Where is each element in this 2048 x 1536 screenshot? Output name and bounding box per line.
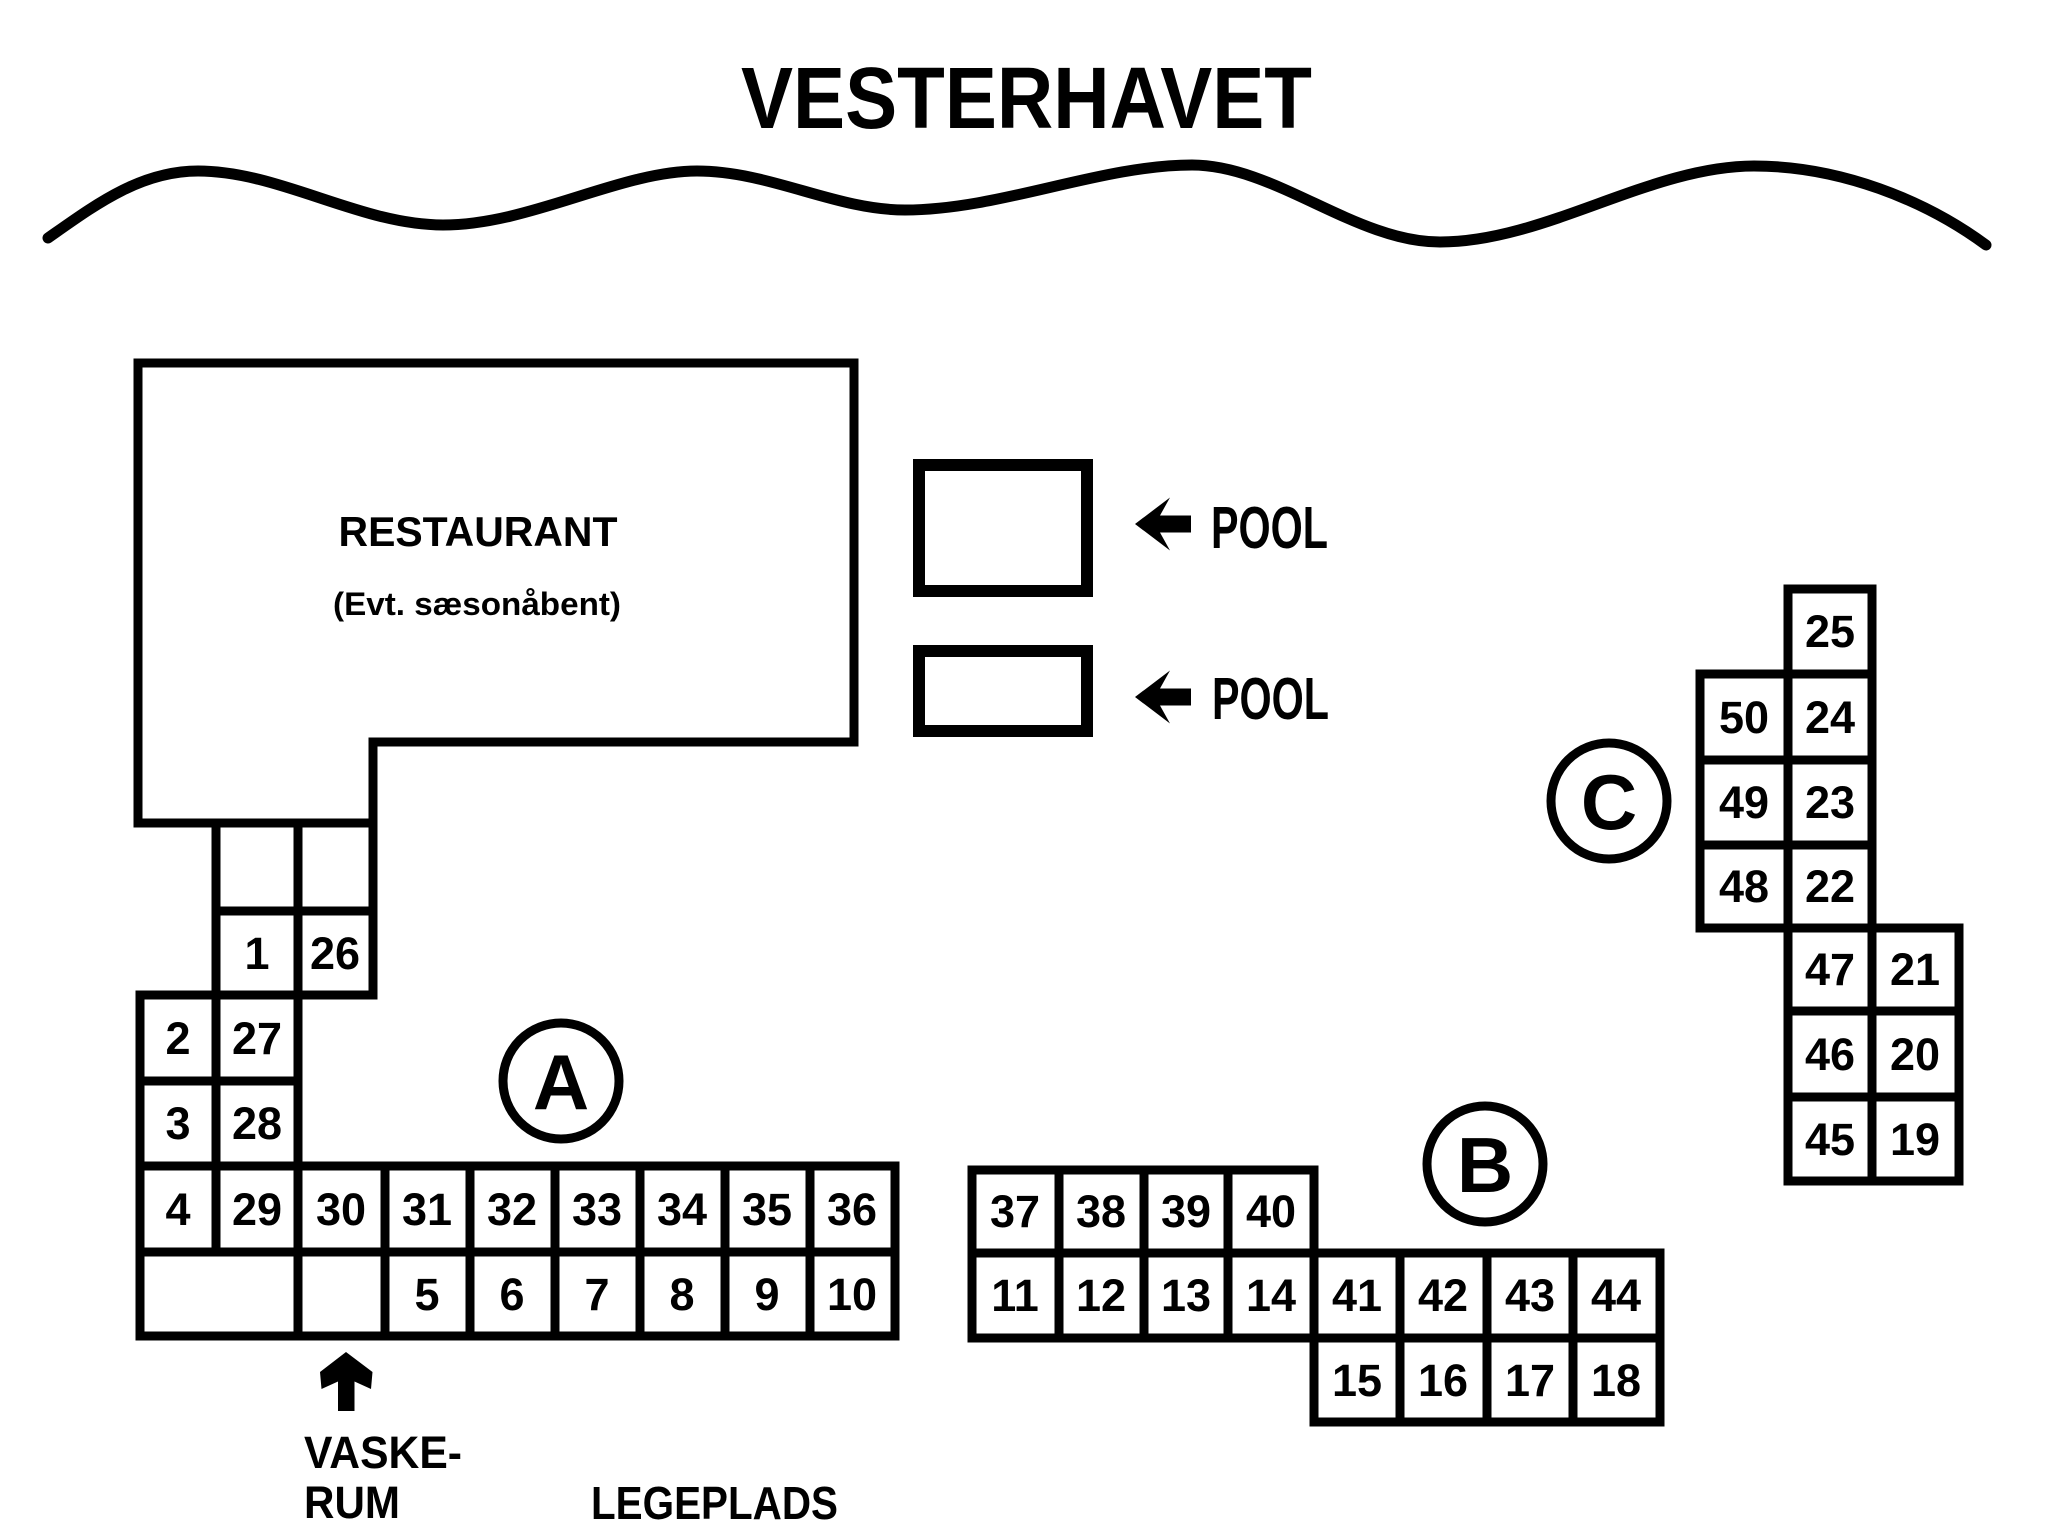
svg-text:31: 31	[402, 1184, 452, 1235]
svg-text:6: 6	[499, 1269, 524, 1320]
svg-text:27: 27	[232, 1013, 282, 1064]
svg-text:POOL: POOL	[1211, 495, 1328, 561]
svg-text:POOL: POOL	[1212, 666, 1329, 732]
svg-text:35: 35	[742, 1184, 792, 1235]
svg-text:28: 28	[232, 1098, 282, 1149]
svg-text:20: 20	[1890, 1029, 1940, 1080]
svg-text:2: 2	[165, 1013, 190, 1064]
svg-text:11: 11	[991, 1270, 1039, 1321]
svg-text:34: 34	[657, 1184, 707, 1235]
svg-text:29: 29	[232, 1184, 282, 1235]
svg-text:19: 19	[1890, 1114, 1940, 1165]
svg-text:3: 3	[165, 1098, 190, 1149]
svg-text:21: 21	[1890, 944, 1940, 995]
svg-text:18: 18	[1591, 1355, 1641, 1406]
svg-text:12: 12	[1076, 1270, 1126, 1321]
svg-text:45: 45	[1805, 1114, 1855, 1165]
svg-text:5: 5	[414, 1269, 439, 1320]
svg-text:22: 22	[1805, 861, 1855, 912]
svg-text:37: 37	[990, 1186, 1040, 1237]
svg-text:33: 33	[572, 1184, 622, 1235]
svg-text:9: 9	[754, 1269, 779, 1320]
svg-text:13: 13	[1161, 1270, 1211, 1321]
svg-text:42: 42	[1418, 1270, 1468, 1321]
svg-text:10: 10	[827, 1269, 877, 1320]
svg-text:RESTAURANT: RESTAURANT	[339, 508, 618, 555]
svg-text:RUM: RUM	[304, 1477, 400, 1528]
svg-text:B: B	[1457, 1121, 1513, 1209]
svg-text:8: 8	[669, 1269, 694, 1320]
svg-text:25: 25	[1805, 606, 1855, 657]
svg-text:40: 40	[1246, 1186, 1296, 1237]
svg-text:1: 1	[244, 928, 269, 979]
svg-text:39: 39	[1161, 1186, 1211, 1237]
svg-text:14: 14	[1246, 1270, 1296, 1321]
svg-text:15: 15	[1332, 1355, 1382, 1406]
svg-text:41: 41	[1332, 1270, 1382, 1321]
svg-text:A: A	[533, 1038, 589, 1126]
svg-text:C: C	[1581, 758, 1637, 846]
svg-text:7: 7	[584, 1269, 609, 1320]
svg-text:VESTERHAVET: VESTERHAVET	[741, 50, 1312, 147]
svg-text:LEGEPLADS: LEGEPLADS	[591, 1477, 838, 1529]
svg-text:17: 17	[1505, 1355, 1555, 1406]
svg-text:36: 36	[827, 1184, 877, 1235]
svg-text:46: 46	[1805, 1029, 1855, 1080]
svg-text:38: 38	[1076, 1186, 1126, 1237]
svg-text:43: 43	[1505, 1270, 1555, 1321]
svg-text:49: 49	[1719, 777, 1769, 828]
svg-text:50: 50	[1719, 692, 1769, 743]
svg-text:30: 30	[316, 1184, 366, 1235]
svg-text:16: 16	[1418, 1355, 1468, 1406]
svg-text:48: 48	[1719, 861, 1769, 912]
svg-text:26: 26	[310, 928, 360, 979]
svg-text:32: 32	[487, 1184, 537, 1235]
svg-text:23: 23	[1805, 777, 1855, 828]
svg-text:(Evt. sæsonåbent): (Evt. sæsonåbent)	[333, 586, 621, 622]
svg-text:24: 24	[1805, 692, 1855, 743]
svg-text:4: 4	[165, 1184, 190, 1235]
svg-text:VASKE-: VASKE-	[304, 1427, 462, 1478]
svg-text:44: 44	[1591, 1270, 1641, 1321]
svg-text:47: 47	[1805, 944, 1855, 995]
